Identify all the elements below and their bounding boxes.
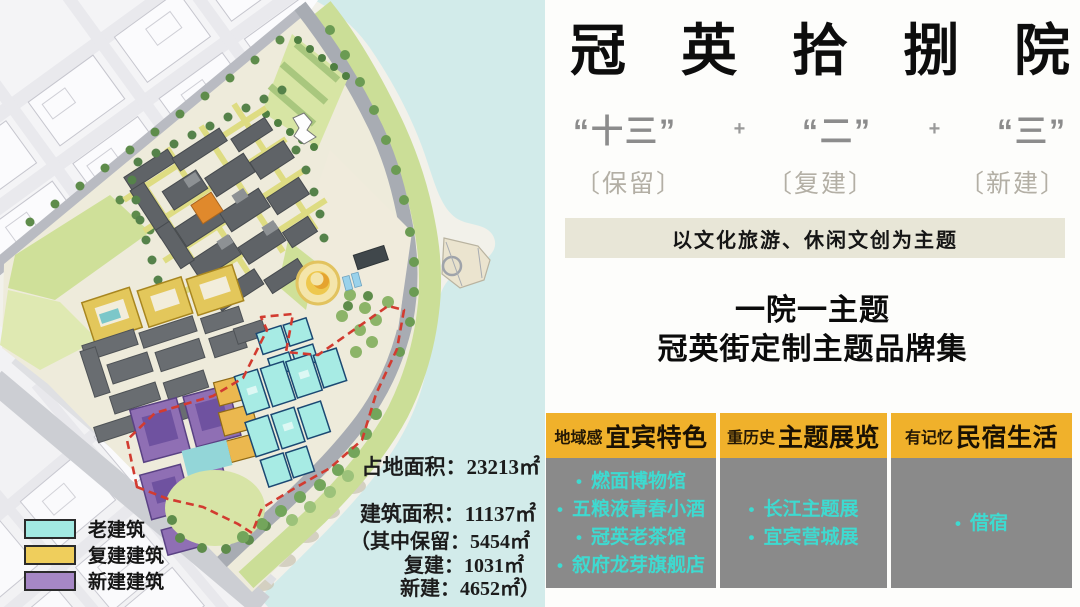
title-char: 捌	[903, 20, 959, 82]
new-area-note: 新建：4652㎡）	[400, 576, 540, 600]
count-formula: “十三” + “二” + “三”	[573, 106, 1067, 152]
column-tag: 地域感	[554, 424, 602, 448]
column-theme-exhibitions: 重历史 主题展览 • 长江主题展 • 宜宾营城展	[720, 413, 887, 588]
content-panel: 冠 英 拾 捌 院 “十三” + “二” + “三” 〔保留〕 〔复建〕 〔新建…	[545, 0, 1080, 607]
heading-line-1: 一院一主题	[545, 291, 1080, 330]
column-body: • 燃面博物馆 • 五粮液青春小酒 • 冠英老茶馆 • 叙府龙芽旗舰店	[546, 458, 716, 588]
bullet-icon: •	[749, 525, 755, 550]
list-item: • 宜宾营城展	[749, 525, 859, 550]
column-header: 地域感 宜宾特色	[546, 413, 716, 458]
site-plan-map: 老建筑 复建建筑 新建建筑 占地面积：23213㎡ 建筑面积：11137㎡ （其…	[0, 0, 545, 607]
bullet-icon: •	[955, 511, 961, 536]
column-header: 有记忆 民宿生活	[891, 413, 1072, 458]
item-label: 燃面博物馆	[591, 469, 686, 494]
count-rebuilt: “二”	[802, 106, 872, 152]
column-header: 重历史 主题展览	[720, 413, 887, 458]
legend-swatch-old	[25, 520, 75, 538]
item-label: 借宿	[970, 511, 1008, 536]
rebuilt-area-note: 复建：1031㎡	[403, 553, 524, 577]
label-new: 〔新建〕	[959, 164, 1067, 200]
column-tag: 有记忆	[905, 424, 953, 448]
bullet-icon: •	[576, 469, 582, 494]
retained-area-note: （其中保留：5454㎡	[350, 529, 530, 553]
label-retained: 〔保留〕	[575, 164, 683, 200]
legend-label-old: 老建筑	[88, 518, 145, 541]
item-label: 五粮液青春小酒	[572, 497, 705, 522]
count-retained: “十三”	[573, 106, 677, 152]
column-homestay-life: 有记忆 民宿生活 • 借宿	[891, 413, 1072, 588]
list-item: • 长江主题展	[749, 497, 859, 522]
list-item: • 借宿	[955, 511, 1008, 536]
legend-swatch-new	[25, 572, 75, 590]
map-legend: 老建筑 复建建筑 新建建筑	[25, 518, 164, 593]
section-heading: 一院一主题 冠英街定制主题品牌集	[545, 291, 1080, 369]
item-label: 叙府龙芽旗舰店	[572, 553, 705, 578]
theme-columns: 地域感 宜宾特色 • 燃面博物馆 • 五粮液青春小酒 • 冠英老茶馆 •	[546, 413, 1072, 588]
plus-icon: +	[929, 118, 941, 141]
legend-label-new: 新建建筑	[88, 570, 164, 593]
bullet-icon: •	[557, 553, 563, 578]
item-label: 冠英老茶馆	[591, 525, 686, 550]
theme-banner: 以文化旅游、休闲文创为主题	[565, 218, 1065, 258]
item-label: 宜宾营城展	[763, 525, 858, 550]
category-labels: 〔保留〕 〔复建〕 〔新建〕	[575, 164, 1067, 200]
item-label: 长江主题展	[763, 497, 858, 522]
column-yibin-features: 地域感 宜宾特色 • 燃面博物馆 • 五粮液青春小酒 • 冠英老茶馆 •	[546, 413, 716, 588]
column-tag: 重历史	[727, 424, 775, 448]
list-item: • 燃面博物馆	[576, 469, 686, 494]
site-area-note: 占地面积：23213㎡	[362, 455, 541, 479]
column-title: 宜宾特色	[606, 418, 708, 454]
title-char: 院	[1014, 20, 1070, 82]
slide: 老建筑 复建建筑 新建建筑 占地面积：23213㎡ 建筑面积：11137㎡ （其…	[0, 0, 1080, 607]
plus-icon: +	[734, 118, 746, 141]
bullet-icon: •	[576, 525, 582, 550]
column-title: 主题展览	[778, 418, 880, 454]
bullet-icon: •	[557, 497, 563, 522]
count-new: “三”	[997, 106, 1067, 152]
list-item: • 五粮液青春小酒	[557, 497, 705, 522]
page-title: 冠 英 拾 捌 院	[570, 20, 1070, 82]
column-body: • 借宿	[891, 458, 1072, 588]
label-rebuilt: 〔复建〕	[767, 164, 875, 200]
bullet-icon: •	[749, 497, 755, 522]
column-body: • 长江主题展 • 宜宾营城展	[720, 458, 887, 588]
list-item: • 冠英老茶馆	[576, 525, 686, 550]
title-char: 冠	[570, 20, 626, 82]
list-item: • 叙府龙芽旗舰店	[557, 553, 705, 578]
legend-swatch-rebuild	[25, 546, 75, 564]
title-char: 英	[681, 20, 737, 82]
legend-label-rebuild: 复建建筑	[87, 544, 164, 567]
column-title: 民宿生活	[956, 418, 1058, 454]
title-char: 拾	[792, 20, 848, 82]
site-plan-svg: 老建筑 复建建筑 新建建筑 占地面积：23213㎡ 建筑面积：11137㎡ （其…	[0, 0, 545, 607]
heading-line-2: 冠英街定制主题品牌集	[545, 330, 1080, 369]
floor-area-note: 建筑面积：11137㎡	[360, 502, 536, 526]
